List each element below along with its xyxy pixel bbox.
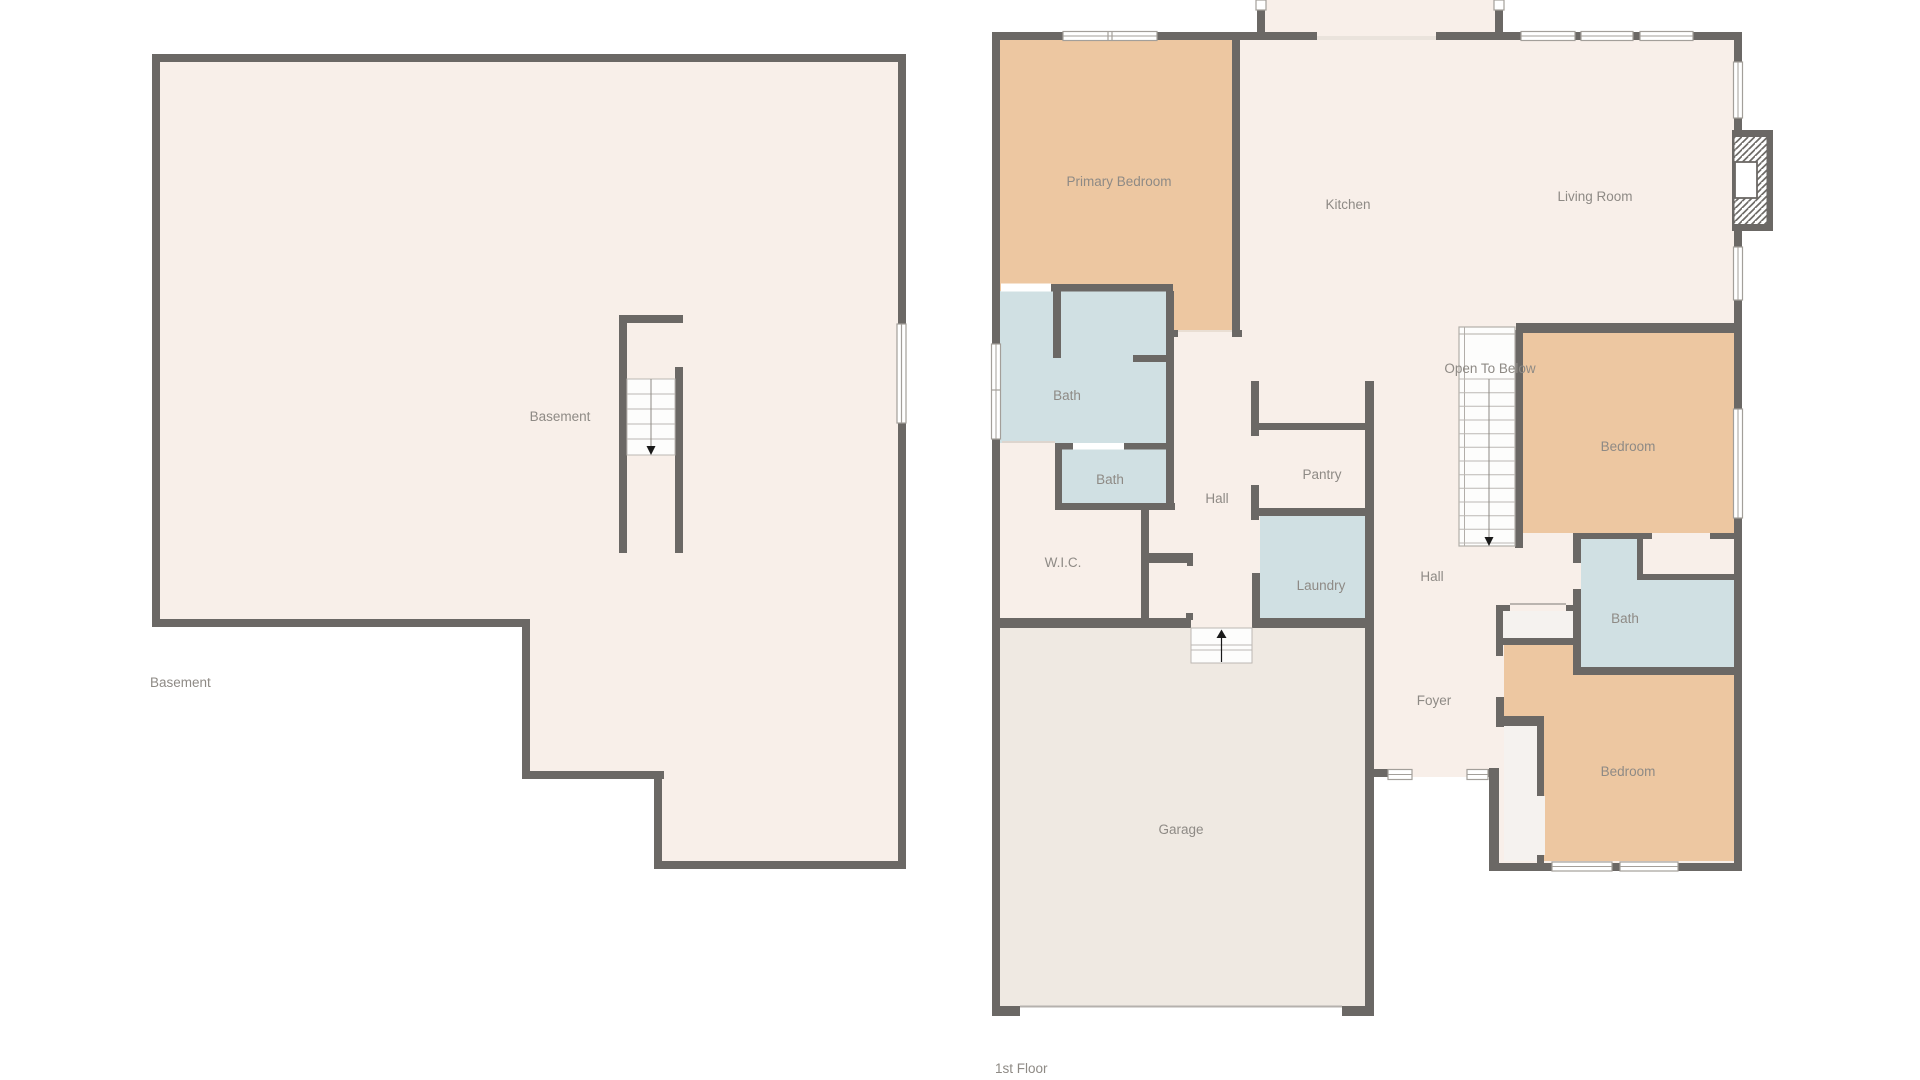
svg-text:Basement: Basement bbox=[150, 675, 211, 690]
svg-text:Living Room: Living Room bbox=[1557, 189, 1632, 204]
svg-text:Bedroom: Bedroom bbox=[1601, 764, 1656, 779]
svg-text:Foyer: Foyer bbox=[1417, 693, 1452, 708]
svg-text:Pantry: Pantry bbox=[1302, 467, 1341, 482]
svg-text:Basement: Basement bbox=[530, 409, 591, 424]
svg-text:Laundry: Laundry bbox=[1297, 578, 1346, 593]
svg-text:Open To Below: Open To Below bbox=[1444, 361, 1536, 376]
svg-text:W.I.C.: W.I.C. bbox=[1045, 555, 1082, 570]
svg-text:Bath: Bath bbox=[1611, 611, 1639, 626]
svg-text:Kitchen: Kitchen bbox=[1325, 197, 1370, 212]
svg-text:Bath: Bath bbox=[1053, 388, 1081, 403]
svg-text:Garage: Garage bbox=[1158, 822, 1203, 837]
svg-text:Hall: Hall bbox=[1205, 491, 1228, 506]
svg-text:Hall: Hall bbox=[1420, 569, 1443, 584]
svg-text:1st Floor: 1st Floor bbox=[995, 1061, 1048, 1076]
svg-text:Bath: Bath bbox=[1096, 472, 1124, 487]
svg-text:Bedroom: Bedroom bbox=[1601, 439, 1656, 454]
svg-text:Primary Bedroom: Primary Bedroom bbox=[1066, 174, 1171, 189]
